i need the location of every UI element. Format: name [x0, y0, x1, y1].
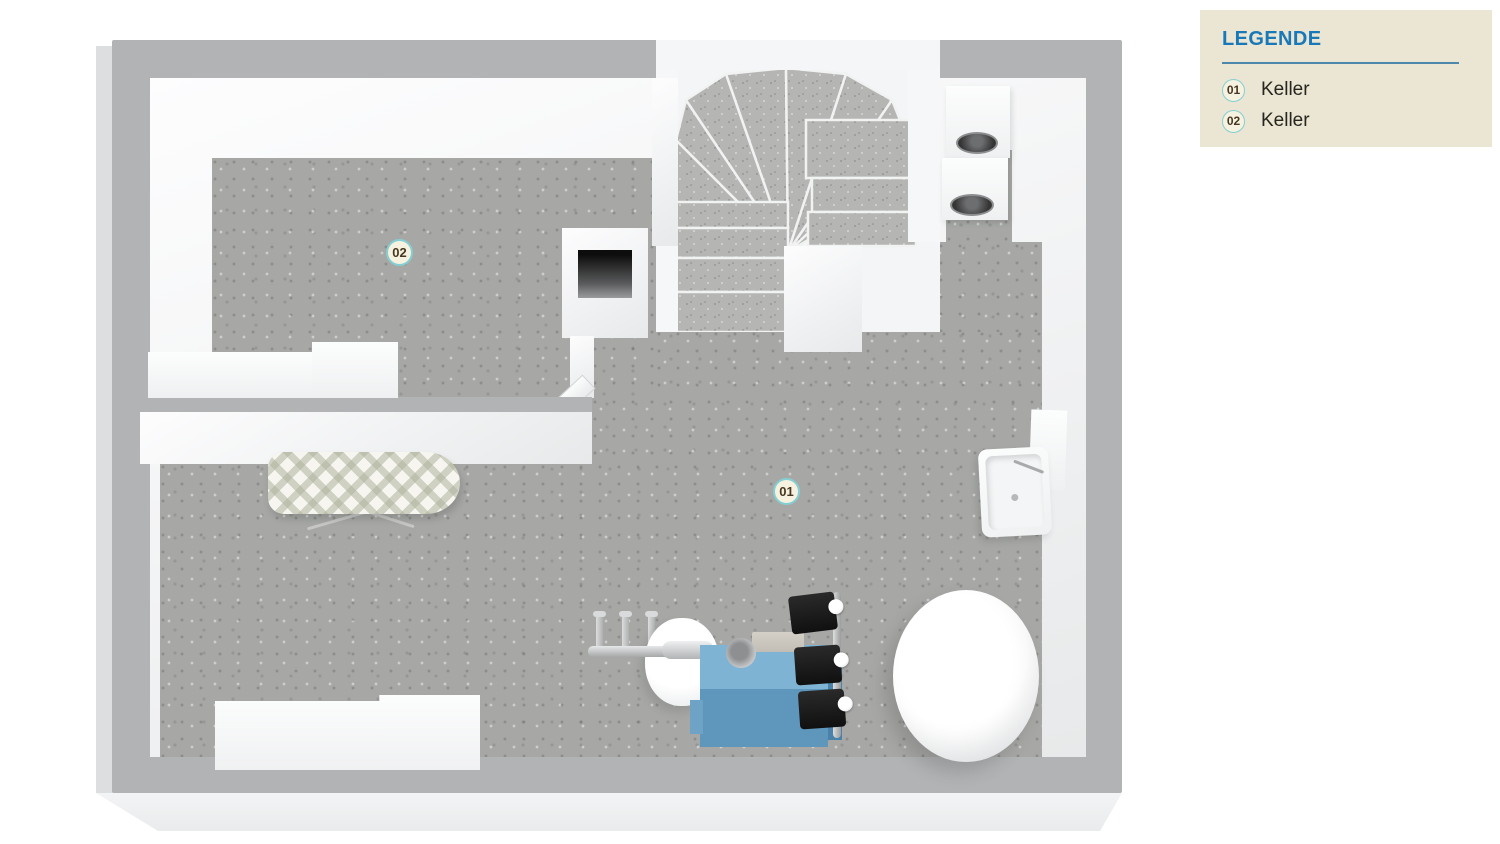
manifold-stub — [596, 616, 603, 648]
chimney-shaft — [562, 228, 648, 338]
dryer-door — [956, 132, 998, 154]
dividing-wall-top — [140, 397, 592, 412]
outer-wall-left-bevel — [96, 46, 113, 793]
legend-rule — [1222, 62, 1459, 64]
legend-label-02: Keller — [1261, 110, 1310, 132]
floorplan-viewer: 02 01 LEGENDE 01 Keller 02 Keller — [0, 0, 1500, 844]
manifold-stub — [622, 616, 629, 648]
legend-badge-01: 01 — [1222, 79, 1245, 102]
washer — [942, 158, 1008, 220]
counter-high — [312, 342, 398, 398]
dryer — [946, 86, 1010, 158]
boiler-valve-3 — [798, 688, 847, 729]
manifold-stub-cap — [593, 611, 606, 617]
washer-door — [950, 194, 994, 216]
legend-badge-02: 02 — [1222, 110, 1245, 133]
counter-low — [148, 352, 314, 398]
legend-item-01[interactable]: 01 Keller — [1222, 77, 1470, 103]
manifold-stub-cap — [645, 611, 658, 617]
manifold-stub-cap — [619, 611, 632, 617]
room-badge-01[interactable]: 01 — [773, 478, 800, 505]
legend-panel: LEGENDE 01 Keller 02 Keller — [1200, 10, 1492, 147]
boiler-step — [690, 700, 703, 734]
hot-water-tank — [893, 590, 1039, 762]
stair-newel-wall — [784, 246, 862, 352]
boiler-valve-2 — [794, 644, 843, 685]
outer-wall-front-face — [96, 793, 1122, 831]
legend-title: LEGENDE — [1222, 28, 1470, 51]
legend-label-01: Keller — [1261, 79, 1310, 101]
sink-basin — [985, 454, 1045, 531]
ironing-board — [268, 452, 460, 514]
room-01-floor-corridor — [592, 398, 1042, 464]
chimney-opening — [578, 250, 632, 298]
utility-sink — [978, 446, 1053, 538]
boiler-valve-1 — [788, 591, 838, 634]
room-02-right-wall — [652, 78, 678, 246]
legend-item-02[interactable]: 02 Keller — [1222, 108, 1470, 134]
room-badge-02[interactable]: 02 — [386, 239, 413, 266]
chest-freezer — [215, 695, 480, 770]
flue-pipe — [726, 638, 756, 668]
